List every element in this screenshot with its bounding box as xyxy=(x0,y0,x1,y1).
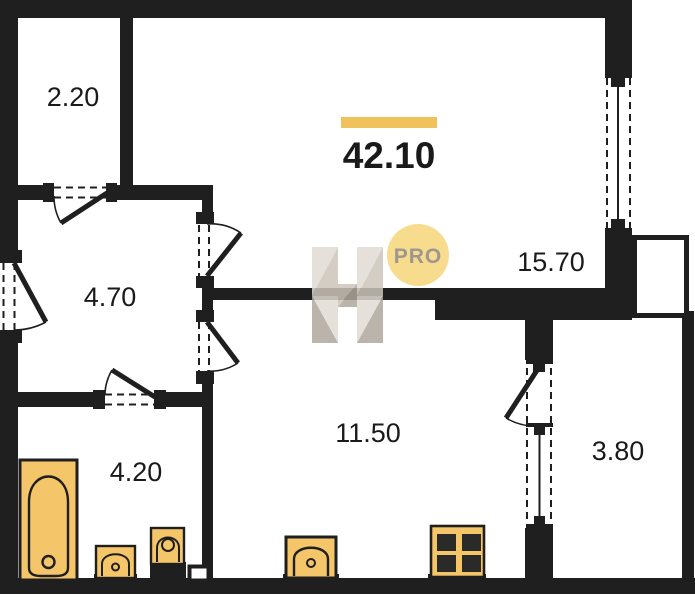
balcony-door-header xyxy=(526,360,553,364)
wall-balcony-divider-upper xyxy=(525,318,553,360)
wall-hallway-right-seg xyxy=(202,384,213,578)
hall-upper-door-leaf xyxy=(207,233,241,276)
burner xyxy=(462,534,481,551)
wall-loggia-right xyxy=(120,18,133,185)
balcony-door-leaf xyxy=(506,368,539,418)
floor-plan-svg: PRO 42.10 2.20 4.70 15.70 11.50 4.20 3.8… xyxy=(0,0,695,600)
room-area-label-loggia: 2.20 xyxy=(47,82,100,112)
fixtures xyxy=(20,460,484,580)
pro-badge: PRO xyxy=(387,224,449,286)
wall-right-mid xyxy=(605,232,632,288)
watermark-logo xyxy=(312,247,383,343)
hall-upper-door-arc xyxy=(207,224,241,233)
bath-door-arc xyxy=(105,370,112,394)
hall-door-post xyxy=(196,371,214,384)
window-sill-nub xyxy=(611,219,625,228)
room-area-label-balcony: 3.80 xyxy=(592,436,645,466)
wall-bottom xyxy=(0,578,695,594)
wall-top xyxy=(0,0,632,18)
balcony-window-sill-cap xyxy=(526,524,553,528)
hall-lower-door-arc xyxy=(207,363,238,371)
balcony-window-sill-nub xyxy=(534,516,545,524)
total-area-accent-bar xyxy=(341,117,437,128)
hall-lower-door-leaf xyxy=(207,322,238,363)
bath-door-post xyxy=(93,390,105,409)
total-area-label: 42.10 xyxy=(343,135,436,176)
bay-window-box xyxy=(635,238,687,316)
wall-loggia-bottom-right xyxy=(117,185,213,200)
pro-badge-label: PRO xyxy=(394,245,443,268)
kitchen-sink xyxy=(286,537,336,578)
wall-bathroom-top-left xyxy=(18,392,93,407)
wall-mid-horizontal-thick xyxy=(435,288,632,320)
wall-bathroom-top-right xyxy=(166,392,202,407)
hall-door-post xyxy=(196,276,214,288)
loggia-door-post xyxy=(43,183,54,202)
wall-left-lower xyxy=(0,343,18,592)
duct-shaft xyxy=(190,567,209,581)
loggia-door-arc xyxy=(54,196,61,223)
entrance-door-post xyxy=(0,250,22,263)
bath-door-post xyxy=(154,390,166,409)
loggia-door-post xyxy=(106,183,117,202)
window-sill-cap xyxy=(605,228,632,232)
hall-door-post xyxy=(196,310,214,322)
wall-left-upper xyxy=(0,0,18,250)
hall-door-post xyxy=(196,212,214,224)
room-area-label-living: 15.70 xyxy=(517,247,585,277)
entrance-door-leaf xyxy=(14,263,46,322)
window-sill-nub xyxy=(611,78,625,87)
floor-plan: PRO 42.10 2.20 4.70 15.70 11.50 4.20 3.8… xyxy=(0,0,695,600)
entrance-door-arc xyxy=(14,322,46,330)
wall-right-lower xyxy=(682,311,694,592)
room-area-label-hallway: 4.70 xyxy=(84,282,137,312)
stove xyxy=(431,526,484,577)
room-area-label-kitchen: 11.50 xyxy=(335,418,401,448)
burner xyxy=(462,555,481,572)
burner xyxy=(437,555,456,572)
burner xyxy=(437,534,456,551)
entrance-door-post xyxy=(0,330,22,343)
washbasin xyxy=(96,546,135,578)
bath-door-leaf xyxy=(112,370,155,397)
window-sill-cap xyxy=(605,74,632,78)
toilet xyxy=(151,528,184,564)
balcony-window-sill-nub xyxy=(534,427,545,435)
wall-hallway-right-seg xyxy=(202,185,213,212)
wall-loggia-bottom-left xyxy=(18,185,43,200)
room-area-label-bathroom: 4.20 xyxy=(110,457,163,487)
wall-right-top xyxy=(605,0,632,74)
wall-hallway-right-seg xyxy=(202,288,213,310)
bathtub xyxy=(20,460,77,580)
